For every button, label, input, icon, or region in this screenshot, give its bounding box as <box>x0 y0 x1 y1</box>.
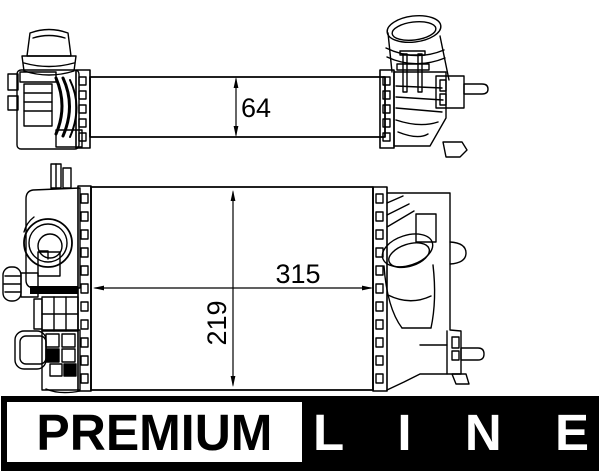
premium-label: PREMIUM <box>36 407 272 458</box>
line-letter-n: N <box>465 407 502 458</box>
dim-label-219: 219 <box>202 300 232 345</box>
line-letter-l: L <box>313 407 344 458</box>
page-canvas: 64 <box>0 0 600 472</box>
front-view: 315 219 <box>3 164 484 393</box>
line-letter-i: I <box>397 407 411 458</box>
technical-drawing: 64 <box>0 0 600 396</box>
premium-box: PREMIUM <box>7 402 302 462</box>
premium-line-logo: PREMIUM L I N E <box>1 396 599 471</box>
top-view-right-tank <box>380 13 488 157</box>
front-view-left-tank <box>3 164 91 393</box>
dim-label-64: 64 <box>241 93 271 123</box>
line-letter-e: E <box>555 407 589 458</box>
line-wordmark: L I N E <box>313 402 589 462</box>
dimension-64: 64 <box>234 77 271 137</box>
front-view-right-tank <box>373 187 484 391</box>
dim-label-315: 315 <box>275 259 320 289</box>
top-view-left-tank <box>8 30 90 150</box>
top-view: 64 <box>8 13 488 157</box>
